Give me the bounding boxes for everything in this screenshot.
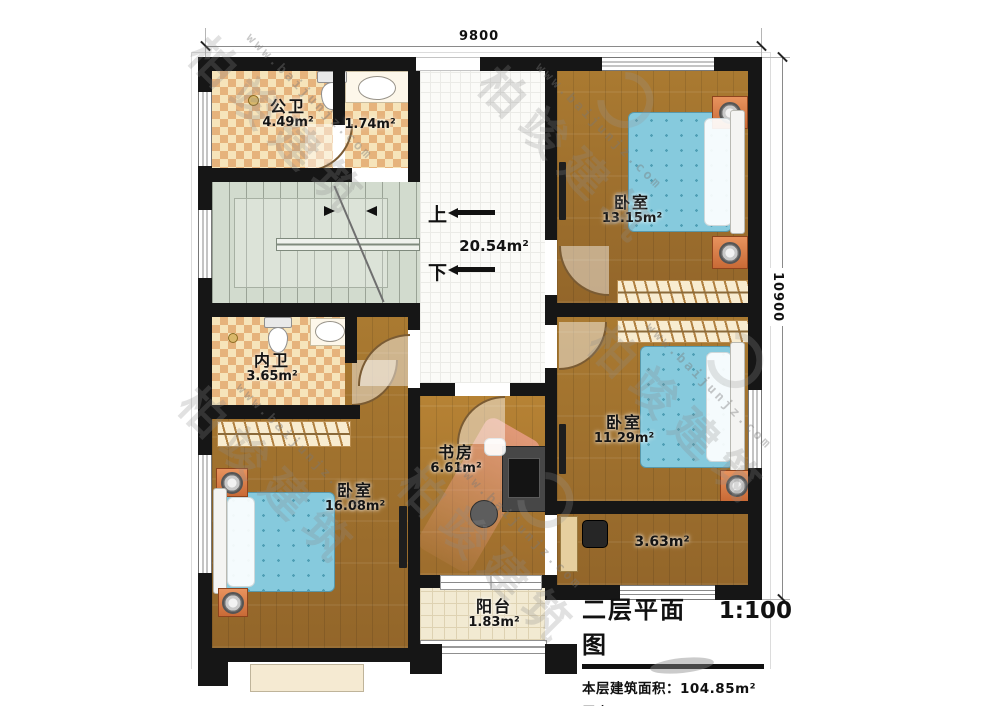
room-name: 卧室 (594, 414, 654, 432)
window-stairs (198, 210, 212, 278)
wall (198, 303, 420, 317)
extension-line (761, 28, 762, 57)
sink-basin-icon (358, 76, 396, 100)
nightstand-bedroom-top-2 (712, 236, 748, 269)
room-name: 卧室 (602, 194, 662, 212)
window-public-bath (198, 92, 212, 166)
stair-down-arrow-bar (457, 267, 495, 272)
tv-bedroom-left (399, 506, 407, 568)
nightstand-bedroom-left-2 (218, 588, 248, 617)
wall (205, 168, 352, 182)
floor-hall (420, 71, 545, 383)
window-bedroom-top (602, 57, 714, 71)
room-label-balcony: 阳台 1.83m² (468, 598, 519, 631)
extension-line (762, 57, 790, 58)
wall (198, 648, 425, 662)
title-underline (582, 664, 764, 669)
title-block: 二层平面图 1:100 本层建筑面积：104.85m² 层高：3.3m (582, 590, 792, 706)
flower-box (250, 664, 364, 692)
tv-bedroom-right (559, 424, 566, 474)
corridor-armchair (582, 520, 608, 548)
room-name: 内卫 (246, 352, 297, 370)
stair-break-arrow-left (324, 206, 335, 216)
stair-down-label: 下 (428, 258, 447, 285)
wall (408, 388, 420, 662)
study-chair (470, 500, 498, 528)
window-bedroom-right (748, 390, 762, 468)
stair-up-arrow-bar (457, 210, 495, 215)
bed-sheet-bedroom-top (704, 118, 732, 226)
room-name: 公卫 (262, 98, 313, 116)
stair-break-arrow-right (366, 206, 377, 216)
tv-bedroom-top (559, 162, 566, 220)
room-name: 阳台 (468, 598, 519, 616)
wall (557, 501, 762, 514)
headboard-bedroom-left (213, 488, 227, 594)
room-label-bedroom-right: 卧室 11.29m² (594, 414, 654, 447)
wall (748, 57, 762, 600)
balcony-post-left (410, 644, 442, 674)
corridor-cabinet (560, 516, 578, 572)
room-area: 1.74m² (344, 118, 395, 133)
room-label-hall: 20.54m² (459, 238, 529, 255)
wall (545, 57, 557, 240)
balcony-sliding-door (440, 575, 542, 590)
wall (545, 575, 557, 600)
stair-handrail (276, 238, 420, 251)
room-area: 20.54m² (459, 238, 529, 255)
stair-up-label: 上 (428, 200, 447, 227)
wall (510, 383, 545, 396)
room-area: 4.49m² (262, 116, 313, 131)
plan-title: 二层平面图 (582, 590, 707, 660)
room-label-corridor: 3.63m² (634, 534, 689, 550)
room-label-public-bath: 公卫 4.49m² (262, 98, 313, 131)
room-name: 书房 (430, 444, 481, 462)
floor-area-line: 本层建筑面积：104.85m² (582, 677, 792, 697)
wall (408, 57, 420, 182)
dimension-right-value: 10900 (770, 268, 785, 326)
floor-plan: 公卫 4.49m² 1.74m² 20.54m² 内卫 3.65m² 书房 6.… (0, 0, 1000, 706)
wardrobe-bedroom-left (217, 421, 351, 447)
lamp-icon (726, 475, 748, 497)
wall (545, 303, 762, 317)
room-label-ensuite-bath: 内卫 3.65m² (246, 352, 297, 385)
lamp-icon (719, 242, 741, 264)
wall (408, 303, 420, 330)
extension-line (205, 28, 206, 57)
room-label-study: 书房 6.61m² (430, 444, 481, 477)
room-name: 卧室 (325, 482, 385, 500)
balcony-post-right (545, 644, 577, 674)
plan-scale: 1:100 (719, 598, 792, 624)
top-opening (416, 57, 480, 71)
wardrobe-bedroom-right (617, 320, 750, 343)
room-area: 16.08m² (325, 500, 385, 515)
wardrobe-bedroom-top (617, 280, 750, 305)
floor-drain-icon (248, 95, 259, 106)
wall (545, 368, 557, 515)
computer-monitor-icon (508, 458, 540, 498)
dimension-line-top (205, 46, 762, 47)
headboard-bedroom-top (730, 110, 745, 234)
wall (545, 295, 557, 325)
ensuite-floor-drain-icon (228, 333, 238, 343)
window-bedroom-left (198, 455, 212, 573)
wall (480, 57, 602, 71)
wall (205, 405, 360, 419)
bed-sheet-bedroom-right (706, 352, 732, 462)
headboard-bedroom-right (730, 342, 745, 472)
room-area: 3.63m² (634, 534, 689, 550)
room-area: 11.29m² (594, 432, 654, 447)
wall (333, 57, 345, 125)
room-label-bedroom-left: 卧室 16.08m² (325, 482, 385, 515)
room-label-small-bath: 1.74m² (344, 118, 395, 133)
title-row: 二层平面图 1:100 (582, 590, 792, 660)
floor-height-line: 层高：3.3m (582, 701, 792, 706)
room-area: 13.15m² (602, 212, 662, 227)
dimension-top-value: 9800 (455, 29, 503, 44)
wall (198, 648, 228, 686)
room-area: 3.65m² (246, 370, 297, 385)
room-area: 6.61m² (430, 462, 481, 477)
room-label-bedroom-top: 卧室 13.15m² (602, 194, 662, 227)
bed-sheet-bedroom-left (227, 497, 255, 587)
room-area: 1.83m² (468, 616, 519, 631)
wall (345, 303, 357, 363)
wall (420, 383, 455, 396)
wall (205, 57, 416, 71)
floor-area-label: 本层建筑面积： (582, 681, 680, 697)
lamp-icon (222, 592, 244, 614)
floor-area-value: 104.85m² (680, 681, 756, 697)
ensuite-sink-basin-icon (315, 321, 345, 342)
dimension-line-right (782, 57, 783, 600)
